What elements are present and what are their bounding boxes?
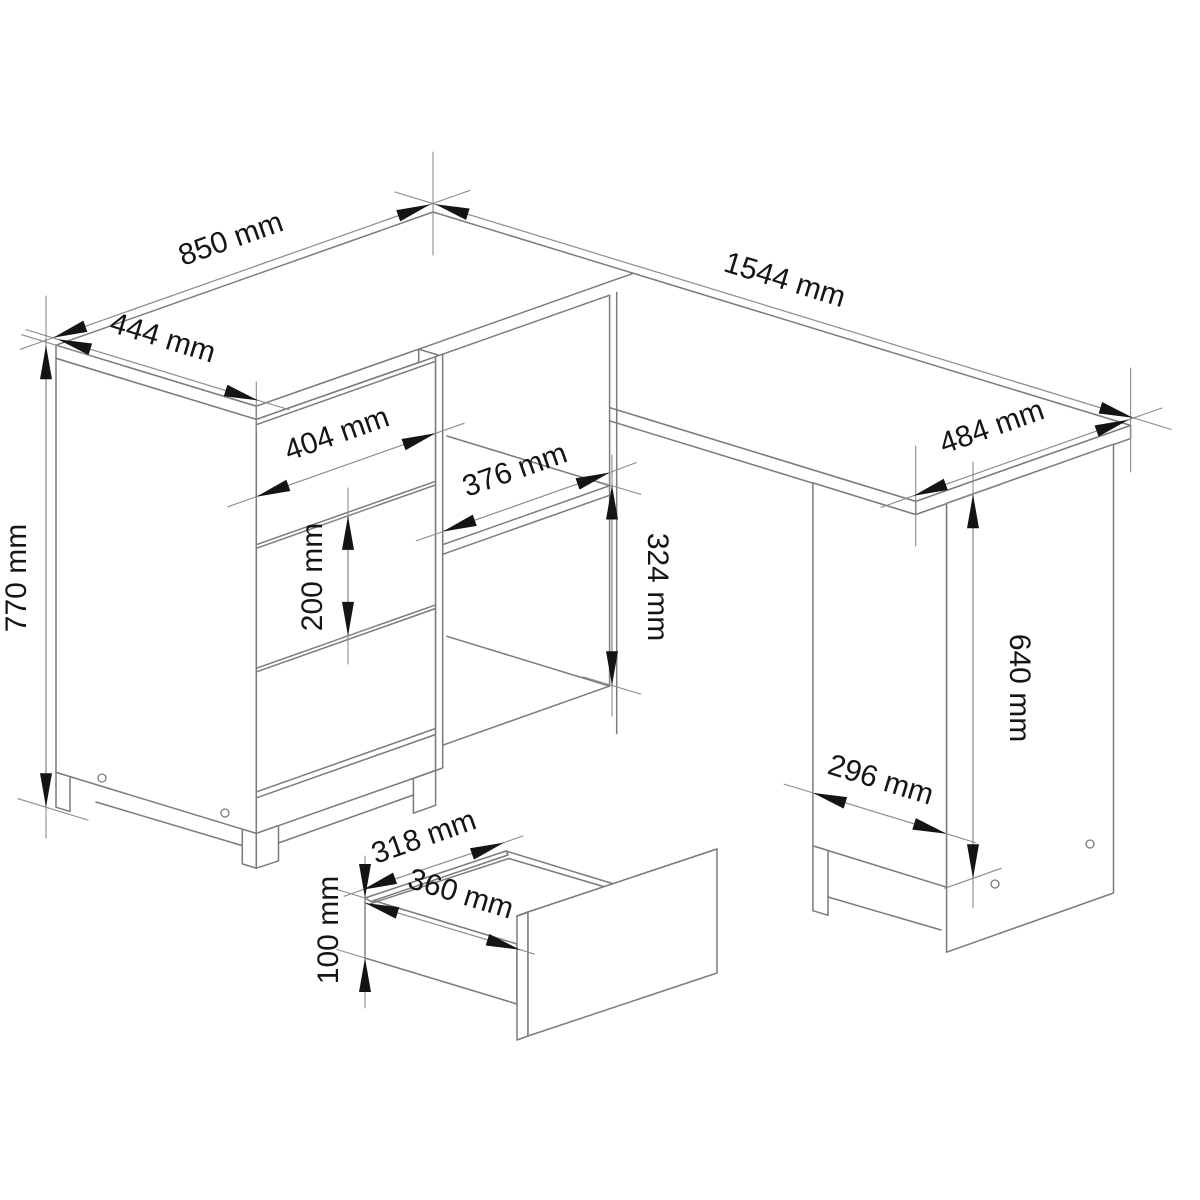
dim-label-100: 100 mm: [312, 876, 345, 984]
dim-label-640: 640 mm: [1003, 634, 1036, 742]
dimension-arrowhead: [40, 773, 52, 807]
dim-label-324: 324 mm: [641, 533, 674, 641]
corner-cross-right-back: [1129, 368, 1171, 472]
drawer-box-floor-side-edge: [509, 859, 610, 889]
pedestal-side-right-leg: [413, 771, 435, 814]
dim-label-318: 318 mm: [367, 803, 480, 870]
technical-drawing-canvas: 850 mm 444 mm 1544 mm 484 mm 770 mm 404 …: [0, 0, 1200, 1200]
dimension-arrowhead: [359, 864, 371, 898]
drawer-front-left-edge: [517, 912, 528, 1040]
dimension-arrowhead: [359, 958, 371, 992]
drawer-front-panel: [528, 849, 717, 1036]
pedestal-front-left-leg: [56, 772, 70, 811]
dim-label-200: 200 mm: [296, 523, 329, 631]
right-cabinet: [813, 444, 1114, 952]
pedestal-front-panel: [56, 358, 256, 833]
drawer-box-far-wall-top-edge: [506, 851, 614, 884]
dimension-arrowhead: [40, 345, 52, 379]
cabinet-plinth-line: [828, 897, 941, 930]
dimension-arrowhead: [53, 321, 87, 338]
pedestal-side-left-leg: [256, 826, 278, 869]
cabinet-front-left-leg: [813, 846, 828, 915]
dim-label-770: 770 mm: [0, 524, 33, 632]
dim-label-850: 850 mm: [174, 205, 287, 272]
dimension-arrowhead: [1099, 402, 1133, 418]
shelf-compartment: [436, 292, 617, 770]
dim-label-1544: 1544 mm: [720, 246, 849, 314]
furniture-dimension-drawing: 850 mm 444 mm 1544 mm 484 mm 770 mm 404 …: [0, 0, 1200, 1200]
compartment-partition-edge: [436, 354, 443, 770]
pedestal-front-right-leg: [242, 829, 256, 868]
